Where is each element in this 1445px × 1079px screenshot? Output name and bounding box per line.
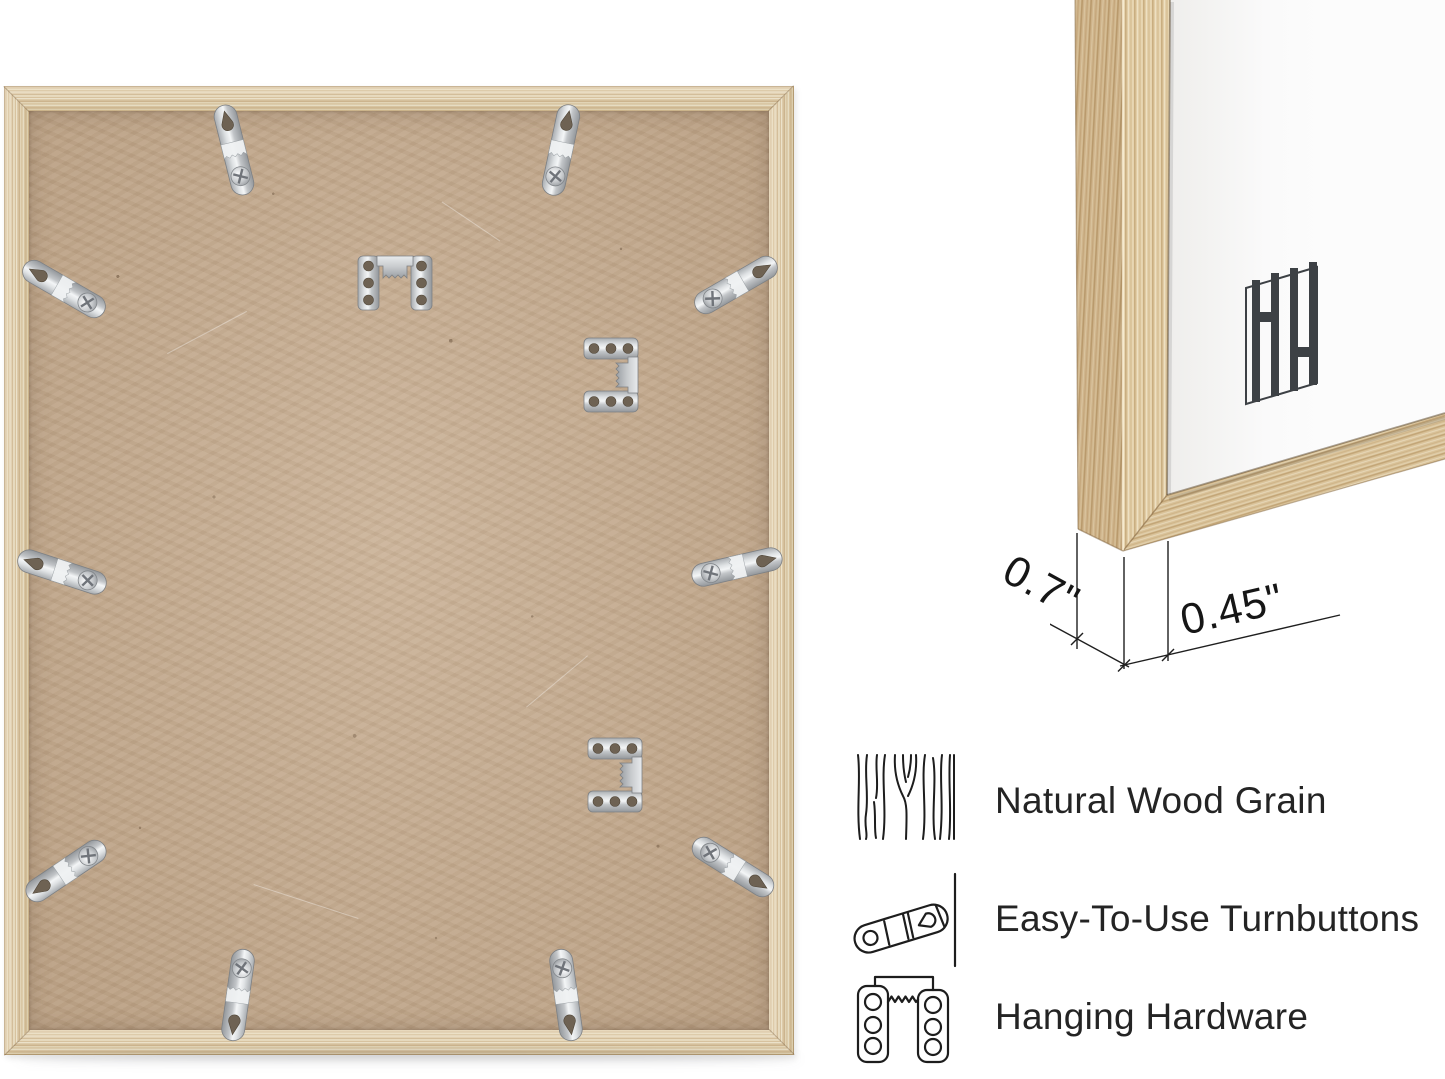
feature-label: Hanging Hardware bbox=[995, 996, 1308, 1038]
frame-border-top bbox=[4, 86, 794, 111]
wood-front-face bbox=[1123, 0, 1170, 551]
backing-scratch bbox=[167, 310, 247, 353]
backing-board bbox=[29, 111, 769, 1030]
backing-scratch bbox=[254, 884, 359, 919]
backing-scratch bbox=[442, 202, 501, 242]
wood-grain-icon bbox=[855, 754, 955, 840]
sawtooth-hanger bbox=[581, 337, 641, 413]
product-image: 0.7" 0.45" bbox=[0, 0, 1445, 1079]
frame-back-photo bbox=[4, 86, 794, 1055]
wood-side-face bbox=[1075, 0, 1123, 551]
frame-border-bottom bbox=[4, 1030, 794, 1055]
turnbutton-icon bbox=[851, 872, 965, 968]
hanging-hardware-icon bbox=[855, 973, 951, 1065]
feature-label: Natural Wood Grain bbox=[995, 780, 1327, 822]
sawtooth-hanger bbox=[357, 253, 433, 313]
frame-drop-shadow bbox=[16, 1053, 800, 1065]
mat-board bbox=[1167, 0, 1445, 495]
sawtooth-hanger bbox=[585, 737, 645, 813]
feature-label: Easy-To-Use Turnbuttons bbox=[995, 898, 1419, 940]
backing-scratch bbox=[526, 655, 588, 707]
